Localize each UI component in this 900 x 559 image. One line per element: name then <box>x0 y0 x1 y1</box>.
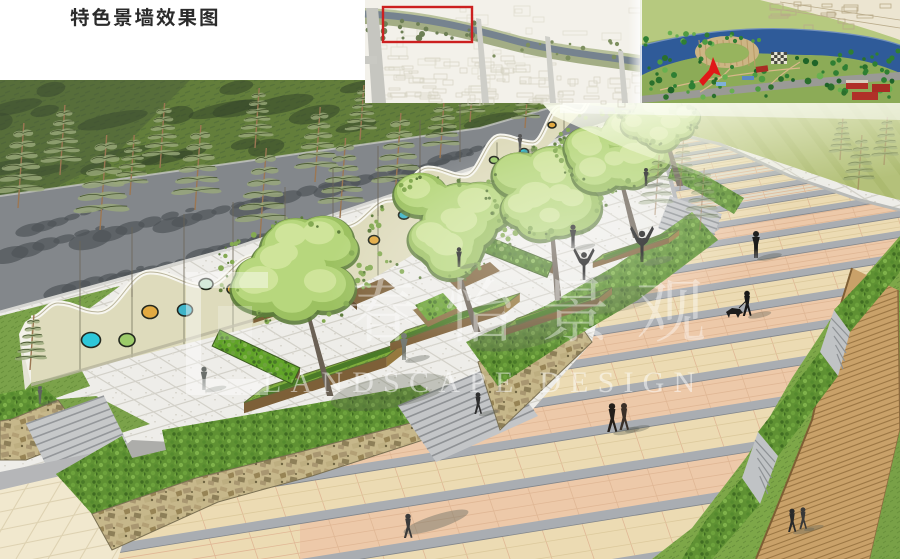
svg-text:LANDSCAPE DESIGN: LANDSCAPE DESIGN <box>263 366 704 399</box>
